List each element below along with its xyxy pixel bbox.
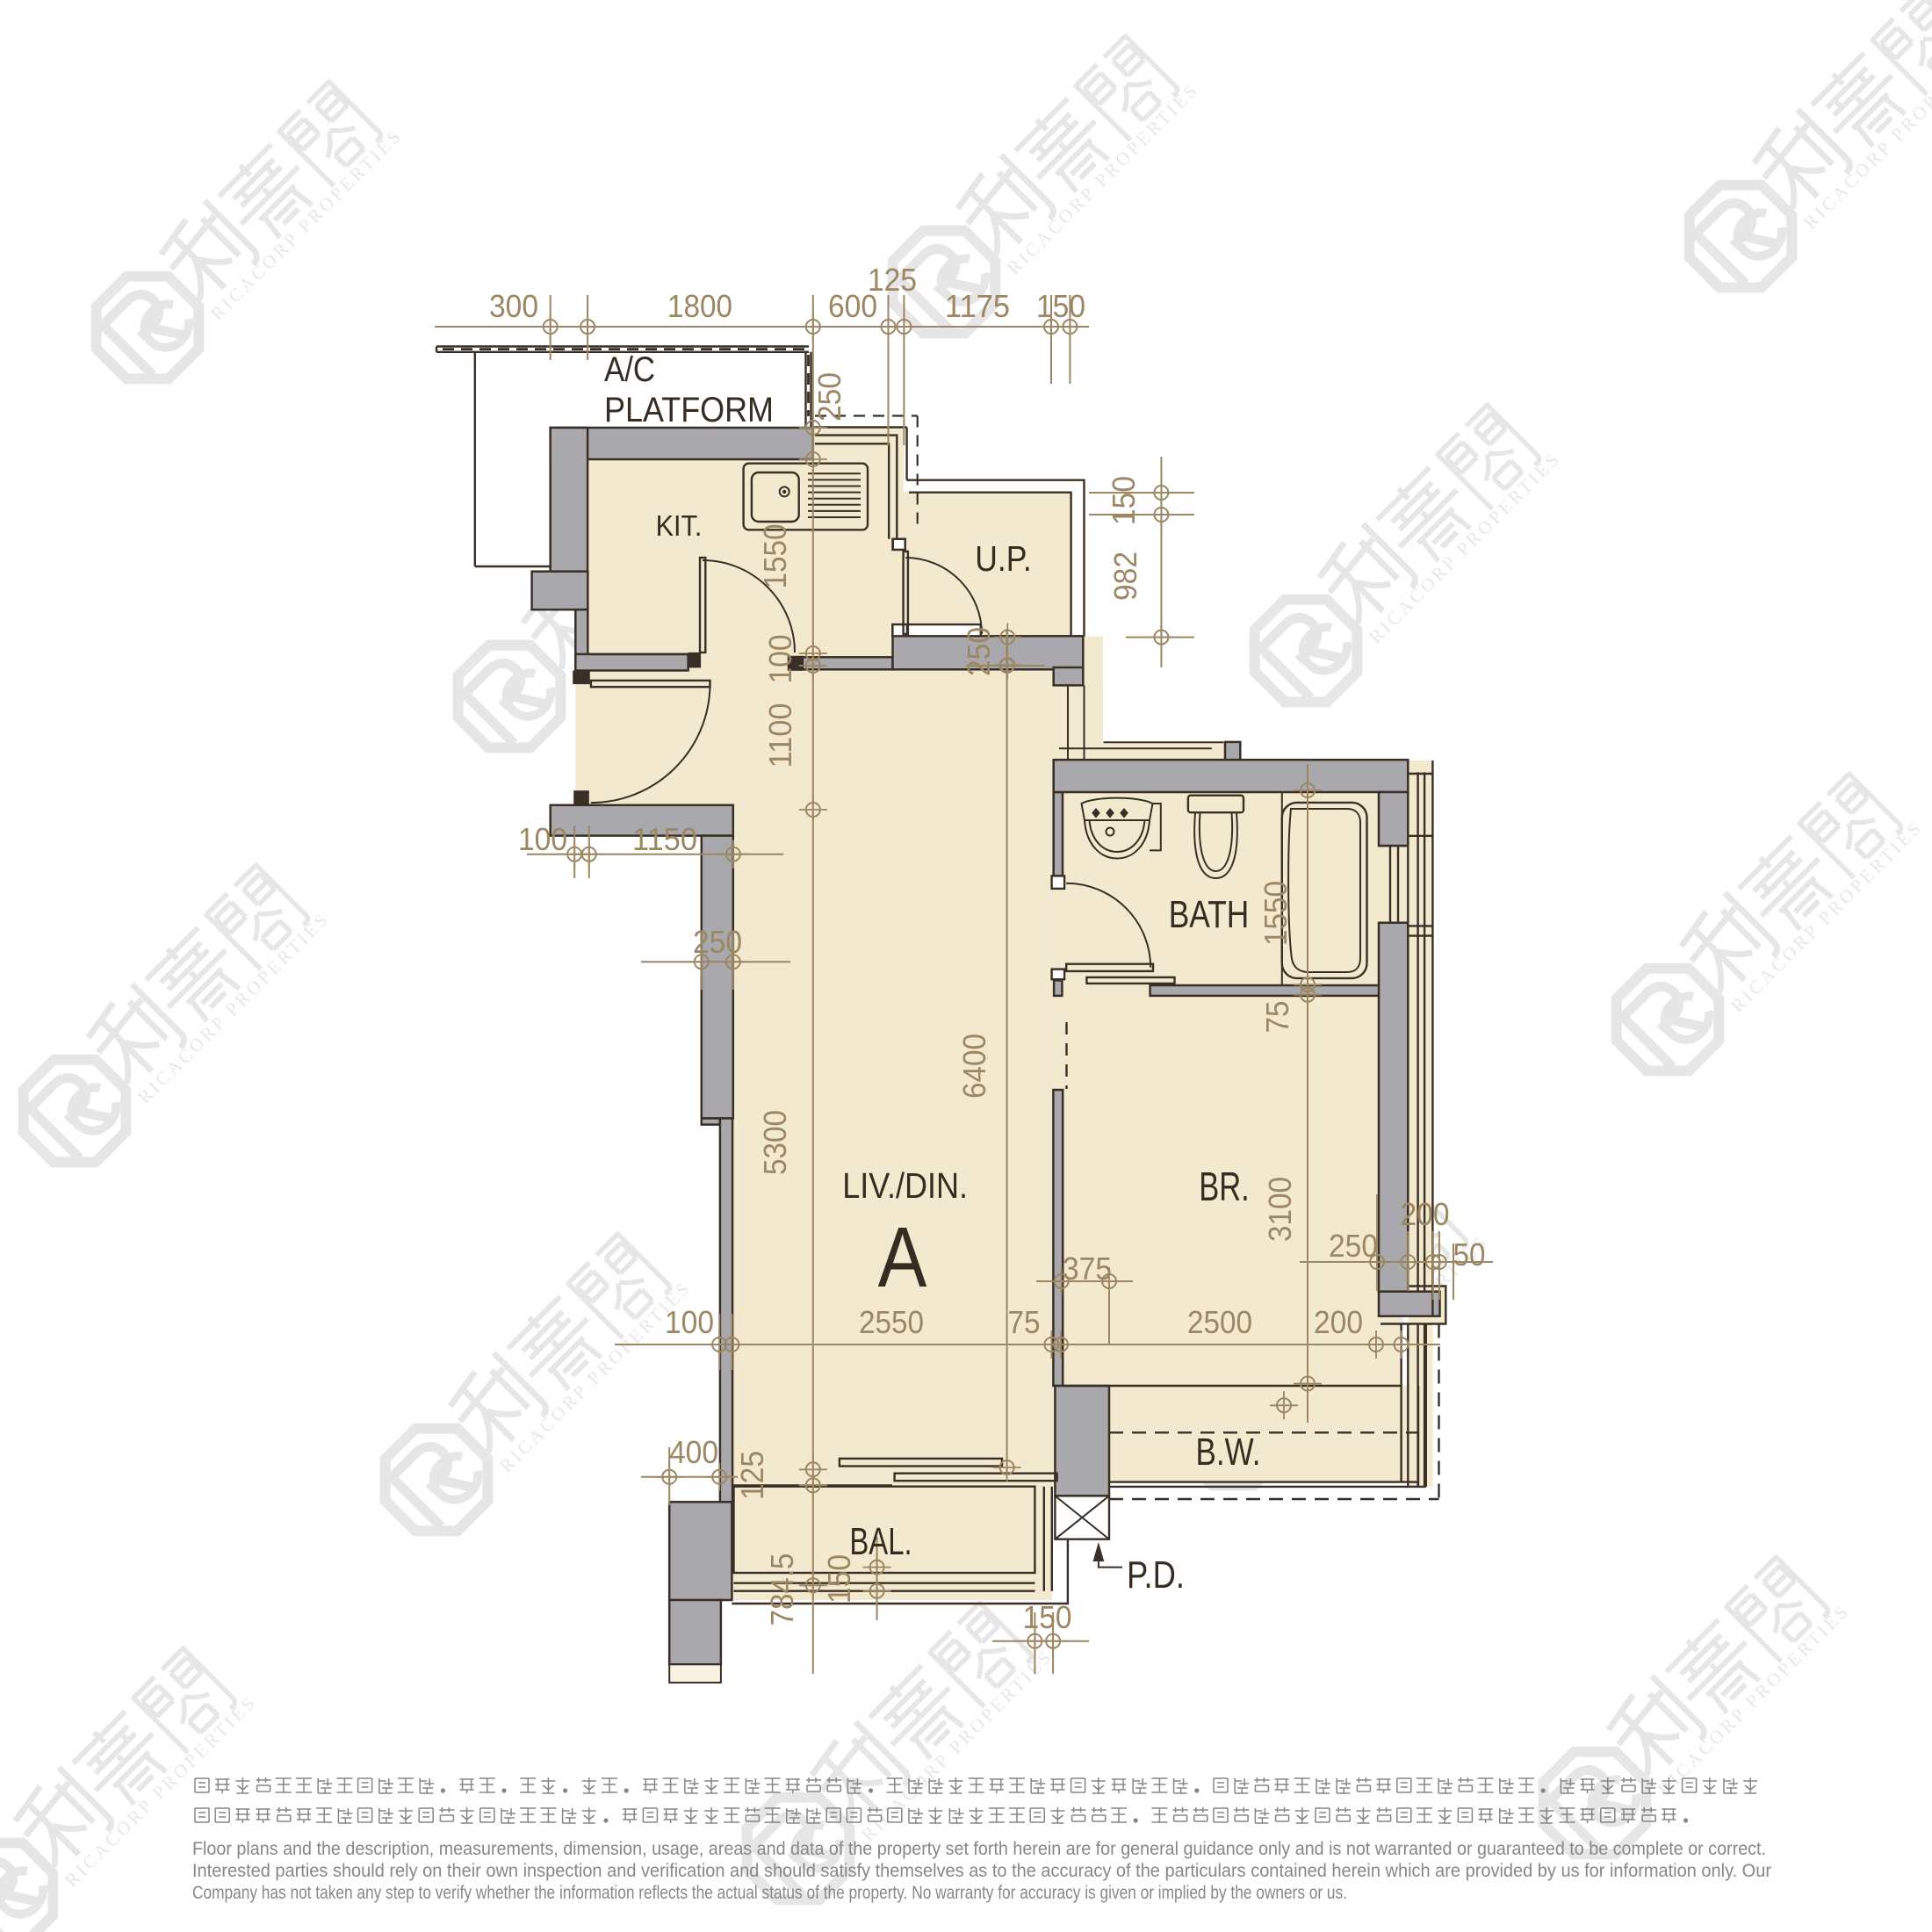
svg-text:LIV./DIN.: LIV./DIN.: [842, 1165, 968, 1206]
svg-text:250: 250: [961, 627, 997, 676]
svg-text:75: 75: [1008, 1304, 1041, 1340]
svg-text:Interested parties should rely: Interested parties should rely on their …: [192, 1860, 1771, 1881]
svg-text:150: 150: [1036, 288, 1085, 324]
svg-text:250: 250: [1329, 1228, 1378, 1264]
svg-text:A: A: [878, 1209, 927, 1305]
svg-text:Floor plans and the descriptio: Floor plans and the description, measure…: [192, 1838, 1766, 1859]
svg-text:BR.: BR.: [1199, 1164, 1250, 1209]
svg-text:P.D.: P.D.: [1127, 1554, 1185, 1597]
svg-text:1150: 1150: [632, 821, 697, 857]
svg-text:50: 50: [1453, 1236, 1486, 1272]
svg-text:150: 150: [1106, 476, 1142, 525]
svg-text:PLATFORM: PLATFORM: [604, 391, 774, 429]
svg-text:1550: 1550: [1258, 881, 1294, 946]
svg-text:A/C: A/C: [604, 350, 655, 389]
svg-text:125: 125: [734, 1451, 770, 1500]
svg-text:1175: 1175: [945, 288, 1010, 324]
svg-text:125: 125: [868, 262, 917, 298]
svg-text:3100: 3100: [1262, 1177, 1298, 1242]
svg-text:BATH: BATH: [1169, 893, 1250, 936]
svg-text:150: 150: [1023, 1599, 1072, 1635]
svg-text:5300: 5300: [757, 1110, 793, 1175]
svg-text:Company has not taken any step: Company has not taken any step to verify…: [192, 1882, 1347, 1903]
svg-text:75: 75: [1259, 1001, 1295, 1034]
svg-text:1800: 1800: [667, 288, 732, 324]
svg-text:784.5: 784.5: [764, 1554, 800, 1626]
svg-text:1100: 1100: [762, 703, 798, 768]
svg-text:B.W.: B.W.: [1196, 1431, 1261, 1474]
svg-text:200: 200: [1314, 1304, 1363, 1340]
svg-text:BAL.: BAL.: [849, 1520, 912, 1563]
svg-text:6400: 6400: [956, 1034, 992, 1099]
svg-text:1550: 1550: [757, 524, 793, 589]
svg-text:982: 982: [1107, 551, 1143, 601]
svg-text:KIT.: KIT.: [656, 509, 703, 542]
svg-text:100: 100: [518, 821, 567, 857]
svg-text:300: 300: [489, 288, 538, 324]
svg-text:200: 200: [1401, 1196, 1450, 1232]
svg-text:100: 100: [665, 1304, 714, 1340]
svg-text:100: 100: [762, 635, 798, 684]
svg-text:U.P.: U.P.: [975, 538, 1032, 579]
svg-text:400: 400: [669, 1434, 718, 1470]
svg-text:2550: 2550: [859, 1304, 924, 1340]
svg-text:2500: 2500: [1187, 1304, 1252, 1340]
svg-text:250: 250: [693, 924, 742, 960]
svg-text:250: 250: [811, 372, 847, 422]
svg-text:375: 375: [1063, 1251, 1112, 1287]
